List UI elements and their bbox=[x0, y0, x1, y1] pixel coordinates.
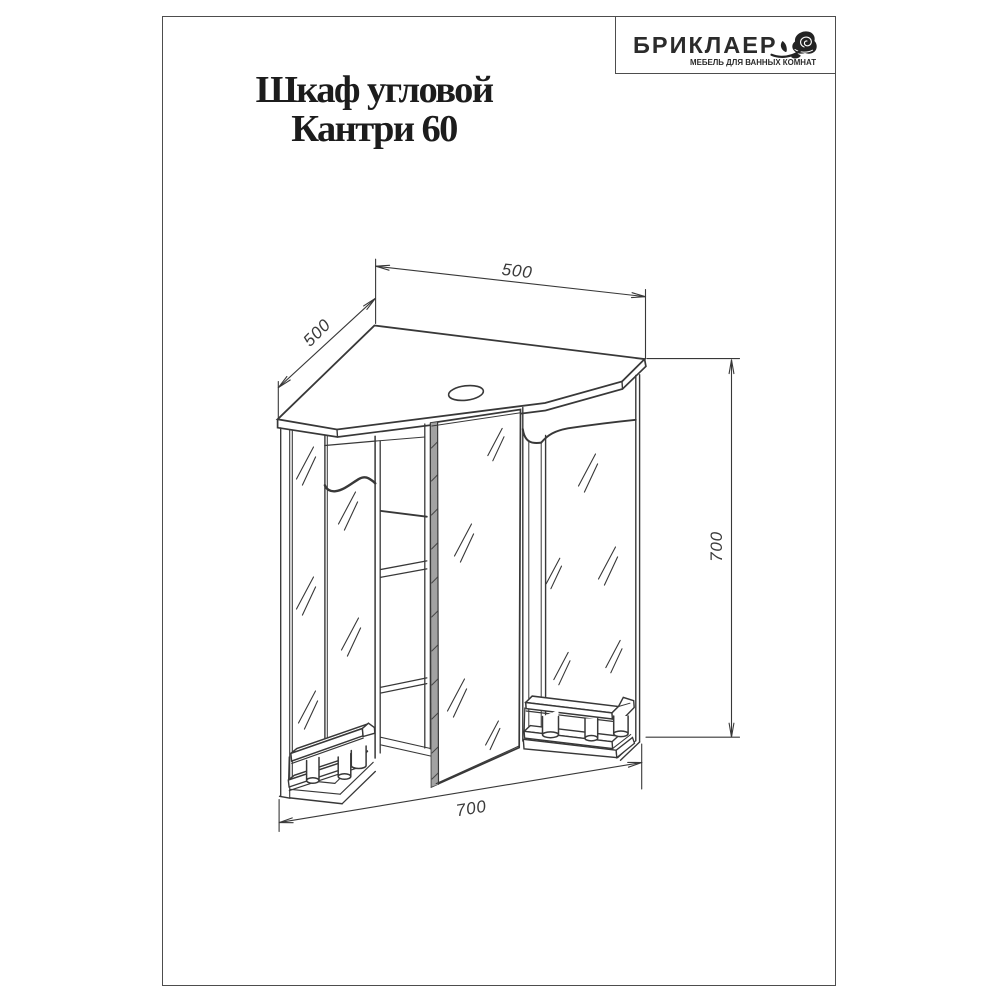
svg-text:500: 500 bbox=[501, 260, 534, 282]
svg-text:700: 700 bbox=[455, 797, 488, 821]
svg-text:500: 500 bbox=[299, 315, 334, 350]
svg-text:700: 700 bbox=[707, 531, 726, 562]
